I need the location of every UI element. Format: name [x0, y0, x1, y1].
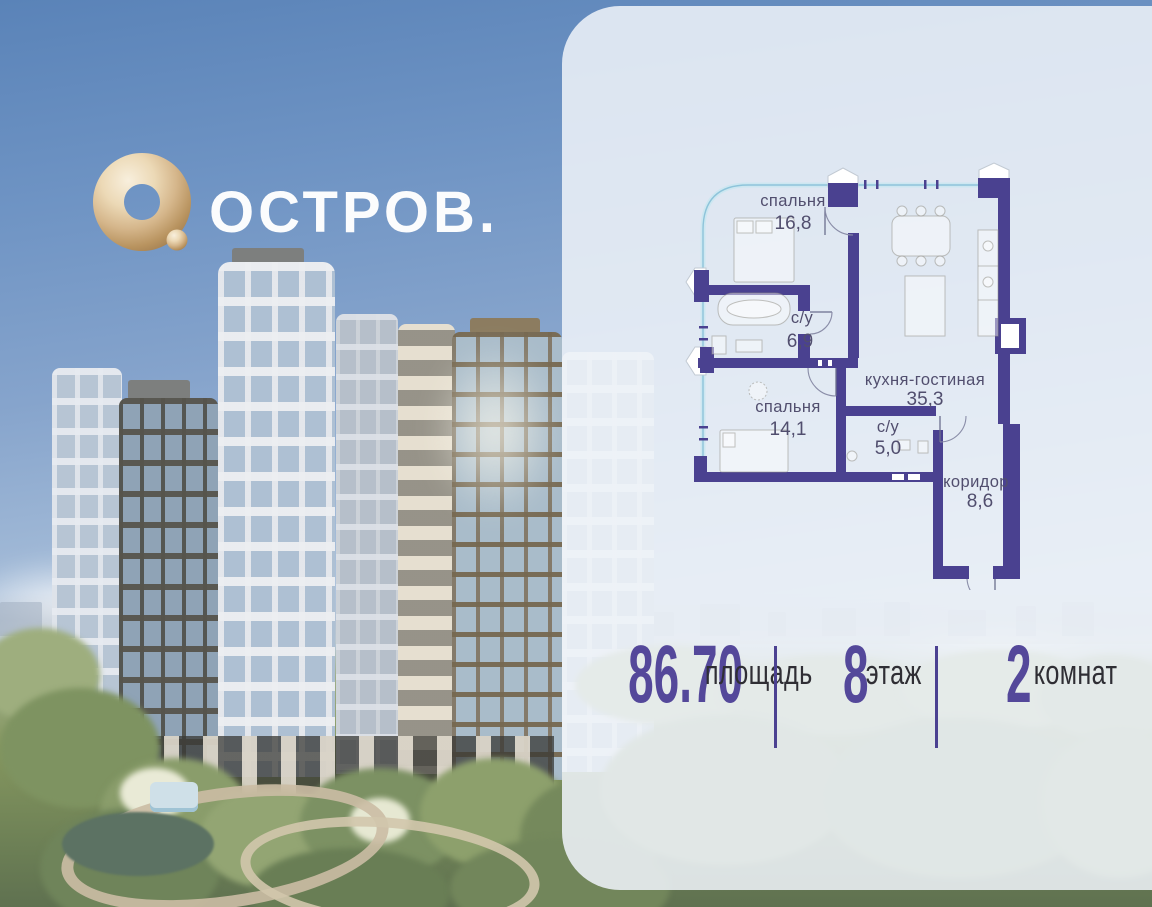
- room-area: 6,9: [787, 331, 813, 352]
- room-name: кухня-гостиная: [865, 371, 985, 389]
- room-name: спальня: [760, 192, 825, 210]
- room-name: спальня: [755, 398, 820, 416]
- dining-table: [892, 216, 950, 256]
- sun-glare: [430, 340, 560, 520]
- tower-back: [336, 314, 398, 774]
- room-name: с/у: [791, 309, 814, 327]
- tower-roof: [128, 380, 190, 400]
- pond: [62, 812, 214, 876]
- brand-wordmark: ОСТРОВ.: [209, 184, 499, 242]
- playground: [150, 782, 198, 812]
- room-area: 35,3: [907, 389, 944, 410]
- ostrov-logo-icon: [88, 148, 200, 260]
- room-name: с/у: [877, 418, 900, 436]
- brand-logo: ОСТРОВ.: [0, 0, 520, 280]
- apartment-card: спальня 16,8 с/у 6,9 кухня-гостиная 35,3…: [0, 0, 1152, 907]
- apartment-stats: 86.70 площадь 8 этаж 2 комнат: [598, 642, 1100, 760]
- apartment-info-panel: спальня 16,8 с/у 6,9 кухня-гостиная 35,3…: [562, 6, 1152, 890]
- room-area: 14,1: [770, 419, 807, 440]
- tower-main: [218, 262, 335, 777]
- stats-divider: [935, 646, 938, 748]
- stats-divider: [774, 646, 777, 748]
- room-area: 16,8: [775, 213, 812, 234]
- room-name: коридор: [943, 473, 1009, 491]
- room-area: 5,0: [875, 438, 901, 459]
- floor-plan: спальня 16,8 с/у 6,9 кухня-гостиная 35,3…: [678, 162, 1036, 590]
- room-area: 8,6: [967, 491, 993, 512]
